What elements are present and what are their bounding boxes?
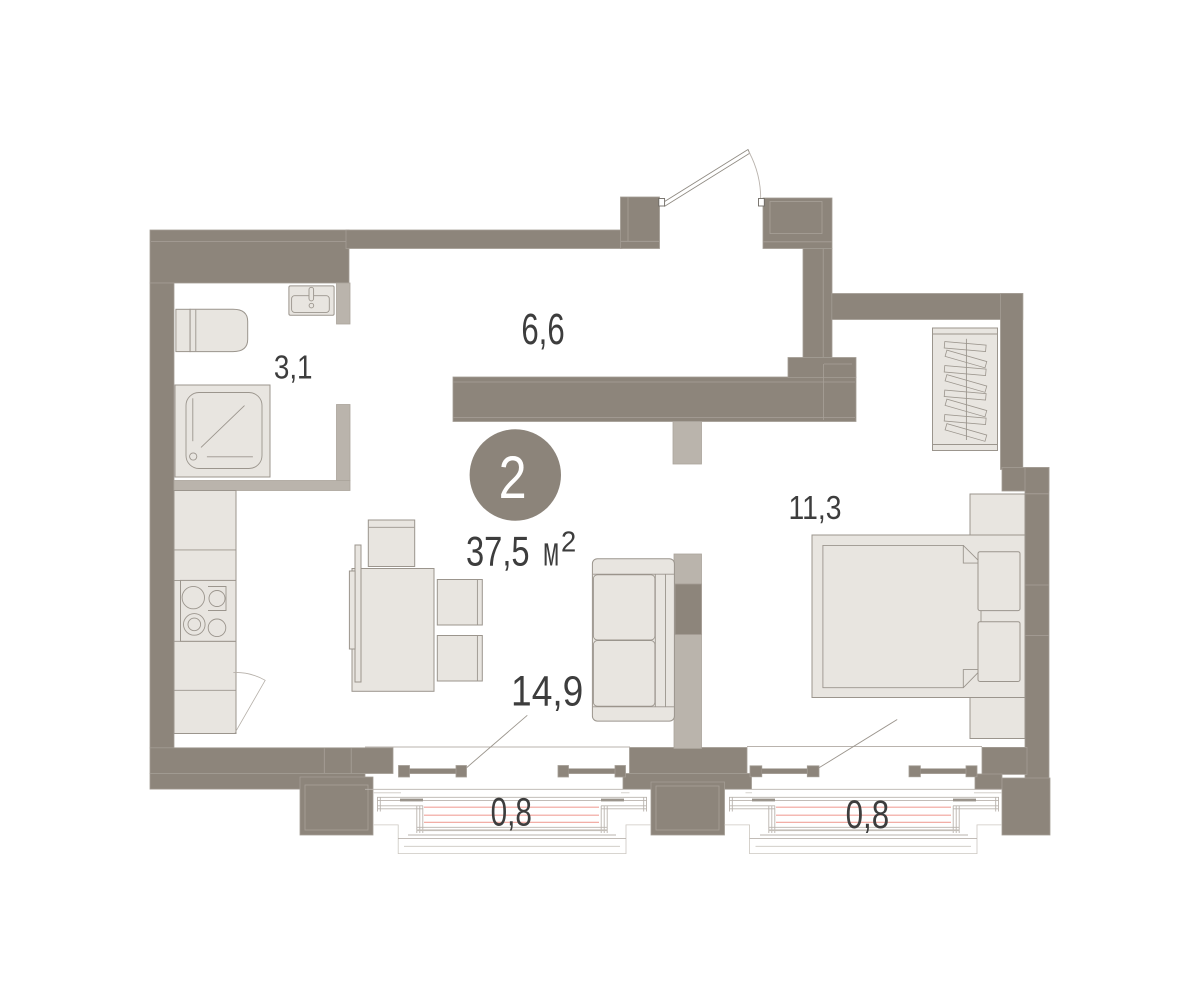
svg-text:2: 2 [499,444,527,511]
svg-text:0,8: 0,8 [846,793,890,837]
svg-text:37,5: 37,5 [466,528,530,575]
svg-text:2: 2 [561,527,576,559]
svg-text:14,9: 14,9 [511,668,583,716]
svg-text:3,1: 3,1 [274,348,313,385]
svg-text:м: м [543,528,559,575]
svg-text:6,6: 6,6 [521,305,564,354]
svg-text:11,3: 11,3 [789,489,842,526]
svg-text:0,8: 0,8 [491,790,532,834]
